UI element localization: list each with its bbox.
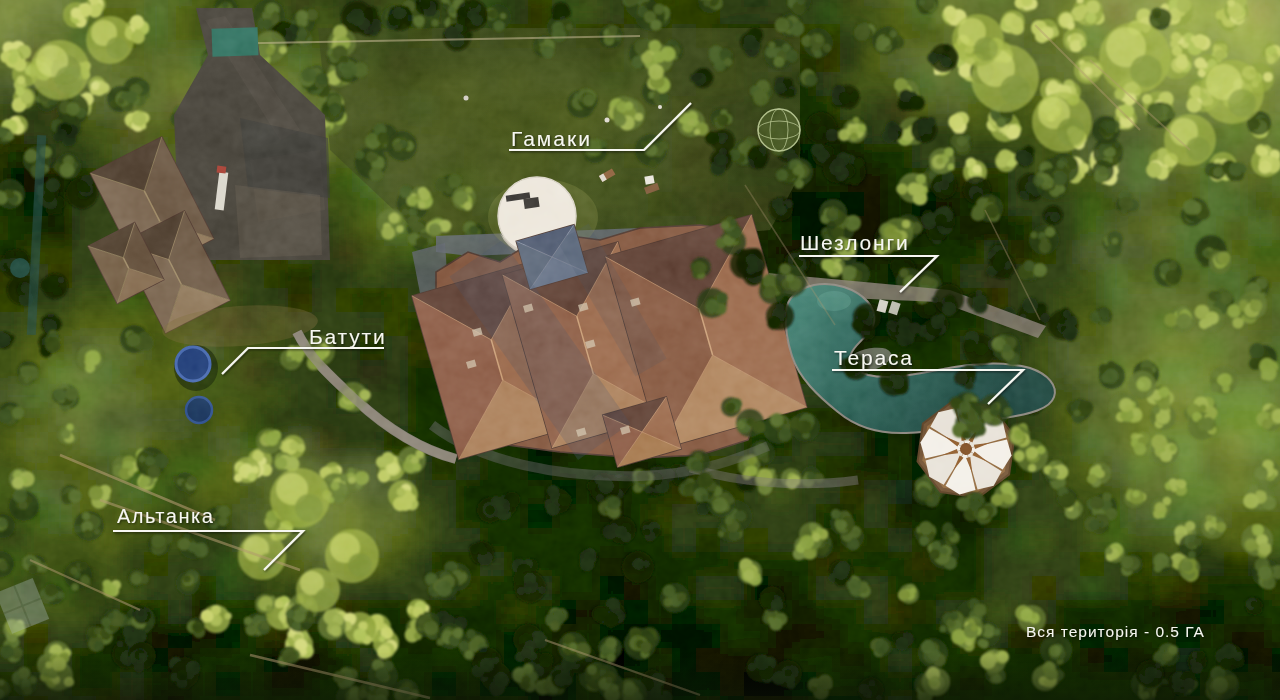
svg-text:Шезлонги: Шезлонги <box>800 231 909 254</box>
svg-text:Тераса: Тераса <box>834 346 914 369</box>
svg-text:Альтанка: Альтанка <box>117 505 214 527</box>
svg-text:Батути: Батути <box>309 325 387 348</box>
svg-text:Гамаки: Гамаки <box>511 127 592 150</box>
svg-text:Вся територія - 0.5 ГА: Вся територія - 0.5 ГА <box>1026 623 1205 640</box>
